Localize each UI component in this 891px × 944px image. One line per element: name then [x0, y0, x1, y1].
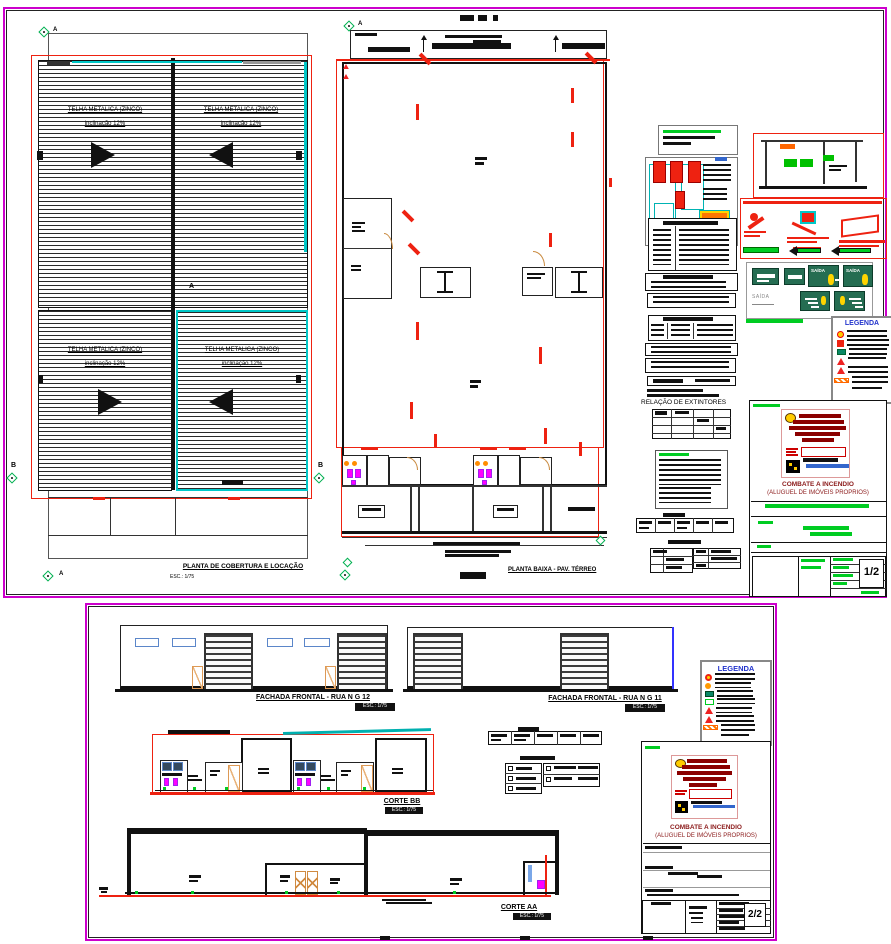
- wall: [555, 833, 559, 895]
- green-label-bar: [823, 155, 834, 161]
- green-arrow-bar: [797, 248, 821, 253]
- lot-line: [48, 497, 308, 498]
- text-bar: [516, 767, 532, 770]
- text-bar: [470, 385, 478, 388]
- section-bb-title: CORTE BB: [362, 798, 442, 806]
- text-bar: [666, 566, 682, 569]
- arrow-stem: [555, 40, 556, 52]
- text-bar: [392, 768, 403, 770]
- legend-text-lines: [852, 376, 888, 384]
- green-text-bar: [645, 746, 660, 749]
- running-person-icon: [828, 274, 834, 285]
- door: [228, 765, 240, 792]
- text-bar: [675, 411, 689, 414]
- wall-line: [265, 863, 267, 895]
- text-bar: [645, 866, 673, 869]
- roller-shutter: [337, 633, 387, 689]
- text-bar: [803, 458, 838, 462]
- green-field-bar: [758, 521, 773, 524]
- text-bar: [514, 734, 530, 737]
- sidewalk-line: [342, 537, 607, 538]
- table-header-bar: [663, 221, 718, 225]
- divider: [643, 870, 770, 871]
- text-bar: [658, 521, 671, 524]
- text-bar: [719, 915, 747, 918]
- text-bar: [655, 411, 667, 415]
- qr-dot: [678, 804, 681, 807]
- text-bar: [491, 734, 507, 737]
- green-field-bar: [801, 559, 825, 562]
- sanitary-fixture: [537, 880, 545, 889]
- sanitary-fixture: [486, 469, 492, 478]
- fire-extinguisher-marker: [343, 64, 349, 69]
- legend-frame-icon: [705, 699, 714, 705]
- stair-bar: [811, 306, 819, 308]
- blue-bar: [806, 464, 849, 468]
- text-bar: [666, 558, 684, 561]
- text-bar: [330, 878, 340, 881]
- red-text-bar: [744, 231, 766, 233]
- green-field-bar: [833, 566, 849, 569]
- legend-text-lines: [852, 387, 882, 392]
- hydrant-box-icon: [800, 211, 816, 224]
- window: [173, 762, 183, 771]
- table-line: [557, 731, 558, 745]
- table-line: [798, 556, 799, 597]
- text-lines: [653, 229, 671, 265]
- red-text-bar: [787, 237, 829, 239]
- detail-line: [855, 142, 857, 182]
- text-bar: [829, 165, 847, 167]
- legend-alarm-triangle-icon: [837, 367, 845, 374]
- legend-text-lines: [849, 348, 887, 355]
- section-aa-scale: ESC.: 1/75: [513, 913, 551, 920]
- table-line: [708, 548, 709, 569]
- text-bar: [445, 35, 502, 38]
- checkbox: [508, 786, 513, 791]
- green-text-bar: [753, 404, 780, 407]
- legend-dot-icon: [705, 683, 711, 689]
- fire-extinguisher-marker: [579, 442, 582, 456]
- grid-label: A: [59, 571, 63, 578]
- sign-dot-icon: [352, 461, 357, 466]
- north-arrow-icon: [553, 35, 559, 40]
- sign-text-bar: [757, 274, 775, 278]
- table-line: [505, 783, 542, 784]
- exit-sign: [752, 268, 779, 285]
- project-title-line2: (ALUGUEL DE IMÓVEIS PROPRIOS): [641, 833, 771, 839]
- text-lines: [703, 188, 727, 200]
- level-dot: [337, 891, 340, 894]
- text-bar: [258, 772, 269, 774]
- detail-line: [761, 140, 863, 142]
- table-line: [650, 564, 693, 565]
- extinguisher-icon: [688, 161, 701, 183]
- section-aa-title: CORTE AA: [483, 904, 555, 912]
- sanitary-fixture: [355, 469, 361, 478]
- text-lines: [651, 281, 726, 289]
- text-bar: [696, 521, 709, 524]
- text-bar: [341, 770, 351, 772]
- wc-room: [498, 455, 520, 487]
- text-bar: [715, 521, 728, 524]
- divider: [643, 843, 770, 844]
- table-line: [511, 731, 512, 745]
- detail-base: [759, 186, 867, 189]
- wall-line: [265, 863, 366, 865]
- text-lines: [671, 324, 690, 338]
- text-bar: [647, 389, 703, 392]
- text-lines: [659, 459, 721, 485]
- grid-label: B: [318, 462, 323, 470]
- fire-hose-marker: [361, 447, 378, 450]
- green-text-bar: [659, 453, 689, 456]
- ramp-bar: [382, 899, 426, 901]
- slope-arrow-icon: [209, 389, 233, 415]
- level-dot: [327, 787, 330, 790]
- sign-dot-icon: [483, 461, 488, 466]
- eave-bar: [243, 61, 301, 64]
- level-dot: [225, 787, 228, 790]
- table-title-bar: [668, 540, 701, 544]
- text-bar: [639, 521, 652, 524]
- floor-plan-title: PLANTA BAIXA - PAV. TÉRREO: [508, 567, 596, 574]
- legend-text-lines: [715, 682, 751, 688]
- baseline-red: [99, 895, 551, 897]
- green-field-bar: [833, 574, 853, 577]
- table-line: [667, 323, 668, 339]
- text-bar: [537, 734, 553, 737]
- step-bar: [321, 775, 331, 777]
- bench-symbol: [571, 271, 587, 273]
- table-line: [830, 588, 886, 589]
- legend-text-lines: [848, 357, 886, 362]
- text-bar: [719, 909, 743, 912]
- table-line: [713, 409, 714, 439]
- legend-alarm-triangle-icon: [705, 716, 713, 723]
- wall-line: [342, 531, 607, 534]
- text-bar: [711, 557, 737, 560]
- text-bar: [651, 902, 671, 905]
- divider: [643, 852, 770, 853]
- level-dot: [191, 891, 194, 894]
- window: [162, 762, 172, 771]
- roof-panel: [38, 60, 172, 308]
- legend-hose-hatch-icon: [703, 725, 718, 730]
- tick-mark: [296, 151, 302, 160]
- stamp-text-bar: [795, 432, 840, 436]
- table-line: [580, 731, 581, 745]
- green-field-bar: [765, 504, 869, 508]
- table-line: [652, 425, 731, 426]
- extinguisher-icon: [675, 191, 685, 209]
- legend-text-lines: [847, 339, 889, 346]
- red-text-bar: [839, 240, 885, 243]
- sanitary-fixture: [173, 778, 178, 786]
- green-field-bar: [757, 545, 771, 548]
- lot-line: [48, 535, 308, 536]
- checkbox: [508, 766, 513, 771]
- roof-panel-label: TELHA METALICA (ZINCO)inclinação 12%: [38, 107, 172, 129]
- door: [192, 666, 203, 689]
- stamp-field-box: [689, 789, 732, 799]
- saida-outline-label: SAÍDA: [752, 294, 770, 300]
- table-line: [693, 409, 694, 439]
- workbench: [522, 267, 553, 296]
- step-bar: [188, 779, 202, 781]
- direction-arrow-icon: [789, 246, 797, 256]
- window: [295, 762, 305, 771]
- text-bar: [829, 169, 841, 171]
- text-bar: [470, 380, 481, 383]
- roof-panel-label: TELHA METALICA (ZINCO)inclinação 12%: [176, 347, 308, 369]
- table-line: [534, 731, 535, 745]
- text-bar: [677, 527, 687, 529]
- legend-title: LEGENDA: [831, 320, 891, 327]
- text-bar: [368, 47, 410, 52]
- facade-11-scale: ESC.: 1/75: [625, 704, 665, 712]
- text-bar: [258, 768, 269, 770]
- roof-beam: [127, 828, 367, 834]
- level-dot: [163, 787, 166, 790]
- text-bar: [696, 550, 706, 553]
- text-bar: [668, 872, 698, 875]
- text-bar: [433, 542, 520, 545]
- fire-extinguisher-marker: [571, 88, 574, 103]
- section-volume: [375, 738, 427, 793]
- fire-extinguisher-marker: [410, 402, 413, 419]
- green-label-bar: [800, 159, 813, 167]
- table-line: [693, 518, 694, 533]
- text-bar: [645, 889, 673, 892]
- slope-arrow-icon: [91, 142, 115, 168]
- legend-text-lines: [721, 734, 749, 738]
- text-bar: [663, 136, 715, 139]
- text-bar: [719, 927, 745, 930]
- stamp-text-bar: [675, 790, 687, 792]
- text-bar: [677, 521, 690, 524]
- green-arrow-bar: [743, 247, 779, 253]
- stamp-field-box: [801, 447, 846, 457]
- text-bar: [189, 880, 198, 882]
- window-section: [528, 865, 532, 882]
- table-header-bar: [663, 275, 713, 279]
- roof-panel-highlighted: [176, 310, 308, 491]
- stamp-text-bar: [682, 765, 730, 769]
- text-bar: [689, 912, 703, 914]
- stamp-text-bar: [689, 783, 717, 787]
- red-tick: [93, 497, 105, 500]
- ground-line: [403, 689, 678, 692]
- divider: [751, 501, 886, 502]
- divider: [751, 552, 886, 553]
- lot-line: [110, 497, 111, 535]
- border-tick: [643, 936, 653, 940]
- level-dot: [363, 787, 366, 790]
- bench-symbol: [437, 271, 453, 273]
- text-bar: [653, 379, 683, 383]
- furniture-bar: [352, 230, 365, 232]
- text-lines: [697, 324, 733, 338]
- legend-title: LEGENDA: [700, 664, 772, 673]
- desk: [493, 505, 518, 518]
- stamp-text-bar: [793, 420, 844, 424]
- window: [306, 762, 316, 771]
- table-line: [505, 773, 542, 774]
- legend-text-lines: [717, 698, 755, 704]
- step-bar: [321, 779, 335, 781]
- sheet-2: FACHADA FRONTAL - RUA N G 12 ESC.: 1/75 …: [85, 603, 777, 941]
- bench-symbol: [571, 291, 587, 293]
- wall-line: [410, 487, 412, 533]
- facade-12-scale: ESC.: 1/75: [355, 703, 395, 711]
- text-bar: [210, 770, 220, 772]
- sanitary-fixture: [297, 778, 302, 786]
- table-line: [712, 518, 713, 533]
- level-dot: [297, 787, 300, 790]
- text-lines: [651, 361, 729, 370]
- text-bar: [696, 564, 706, 567]
- bench-symbol: [437, 291, 453, 293]
- legend-alarm-triangle-icon: [837, 358, 845, 365]
- roof-beam: [366, 830, 559, 836]
- extinguisher-icon: [670, 161, 683, 183]
- furniture-bar: [351, 269, 361, 271]
- text-bar: [560, 734, 576, 737]
- stamp-text-bar: [675, 793, 685, 795]
- grid-label: A: [358, 21, 362, 28]
- table-line: [693, 562, 741, 563]
- text-lines: [651, 324, 664, 338]
- text-bar: [647, 894, 739, 896]
- table-line: [652, 417, 731, 418]
- furniture-bar: [352, 226, 361, 228]
- fire-extinguisher-marker: [416, 322, 419, 340]
- underline: [752, 304, 774, 305]
- text-bar: [653, 550, 667, 553]
- table-line: [693, 555, 741, 556]
- stamp-text-bar: [687, 759, 727, 763]
- grid-marker-icon: [343, 558, 353, 568]
- table-line: [693, 323, 694, 339]
- roof-plan-title: PLANTA DE COBERTURA E LOCAÇÃO: [153, 563, 333, 571]
- table-line: [543, 774, 600, 775]
- section-marker-label: A: [189, 283, 194, 291]
- wall-line: [472, 487, 474, 533]
- red-line: [545, 855, 547, 896]
- checkbox: [546, 766, 551, 771]
- green-field-bar: [861, 591, 879, 594]
- stair-bar: [852, 302, 862, 304]
- fire-extinguisher-marker: [343, 74, 349, 79]
- text-bar: [639, 527, 649, 529]
- legend-text-lines: [721, 724, 755, 732]
- green-field-bar: [801, 566, 821, 569]
- level-dot: [193, 787, 196, 790]
- text-bar: [691, 801, 722, 804]
- legend-text-lines: [716, 715, 754, 722]
- desk: [358, 505, 385, 518]
- orange-element: [780, 144, 795, 149]
- curb-bar: [101, 891, 107, 893]
- section-bb-scale: ESC.: 1/75: [385, 807, 423, 814]
- wall-line: [418, 487, 420, 533]
- divider: [751, 516, 886, 517]
- table-line: [675, 226, 676, 270]
- legend-hose-hatch-icon: [834, 378, 849, 383]
- sidewalk-line: [365, 545, 604, 546]
- furniture-bar: [352, 222, 365, 224]
- furniture-bar: [527, 277, 541, 279]
- text-bar: [280, 880, 288, 882]
- pin-dot: [707, 676, 710, 679]
- green-bar: [746, 319, 803, 323]
- text-bar: [516, 777, 536, 780]
- wall: [127, 828, 131, 895]
- roof-panel-label: TELHA METALICA (ZINCO)inclinação 12%: [174, 107, 308, 129]
- roof-plan-scale: ESC.: 1/75: [170, 574, 194, 580]
- green-label-bar: [784, 159, 797, 167]
- text-bar: [514, 739, 526, 741]
- text-bar: [330, 882, 338, 884]
- ramp-bar: [386, 902, 432, 904]
- green-field-bar: [803, 526, 849, 530]
- text-bar: [562, 43, 605, 49]
- text-bar: [578, 777, 598, 780]
- ground-line: [115, 689, 393, 692]
- legend-exit-sign-icon: [705, 691, 714, 697]
- stamp-text-bar: [799, 414, 841, 418]
- curb-bar: [99, 887, 108, 890]
- legend-exit-sign-icon: [837, 349, 846, 355]
- text-bar: [392, 772, 403, 774]
- text-bar: [554, 777, 572, 780]
- roller-shutter: [413, 633, 463, 689]
- tick-mark: [296, 375, 301, 383]
- text-bar: [695, 379, 730, 382]
- sanitary-fixture: [347, 469, 353, 478]
- room: [389, 457, 421, 485]
- text-bar: [450, 878, 462, 881]
- green-field-bar: [833, 558, 853, 561]
- bench-symbol: [444, 272, 446, 293]
- window: [304, 638, 330, 647]
- text-bar: [460, 15, 474, 21]
- grid-marker-icon: [42, 570, 53, 581]
- text-lines: [703, 164, 731, 184]
- blue-bar: [715, 157, 727, 161]
- qr-code: [786, 460, 800, 473]
- red-tick: [609, 178, 612, 187]
- qr-dot: [794, 467, 797, 470]
- green-field-bar: [810, 532, 852, 536]
- grid-label: B: [11, 462, 16, 470]
- text-bar: [711, 550, 731, 553]
- text-bar: [280, 875, 290, 878]
- text-bar: [445, 554, 499, 557]
- stamp-text-bar: [683, 777, 726, 781]
- qr-dot: [682, 808, 685, 811]
- roof-panel: [174, 60, 308, 308]
- level-dot: [285, 891, 288, 894]
- table-header-bar: [663, 317, 713, 321]
- text-bar: [341, 774, 348, 776]
- desk-bar: [497, 508, 514, 511]
- scale-bar: [460, 572, 486, 579]
- red-tick: [228, 497, 240, 500]
- sign-text-bar: [788, 275, 802, 279]
- window: [135, 638, 159, 647]
